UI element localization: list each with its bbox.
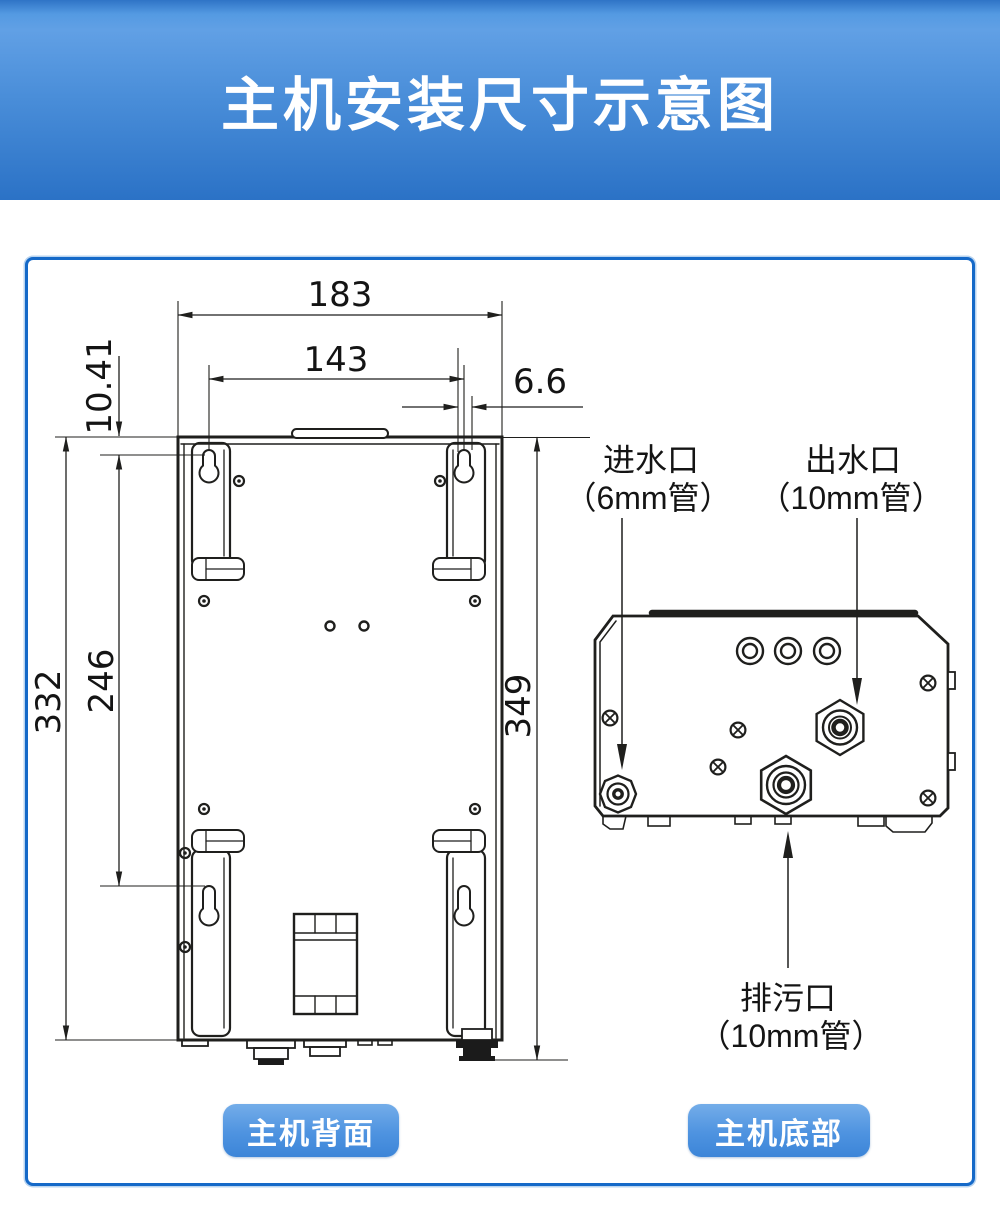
- drain-pipe-label: （10mm管）: [699, 1018, 884, 1054]
- inlet-label: 进水口: [603, 442, 699, 478]
- dim-label-overall-height: 349: [499, 674, 539, 739]
- rear-view-drawing: [178, 429, 502, 1065]
- rear-top-handle-tab: [292, 429, 388, 438]
- dim-label-mounting-height: 246: [82, 649, 122, 714]
- outlet-pipe-label: （10mm管）: [759, 480, 944, 516]
- rear-rail-bottom-left: [192, 830, 244, 1036]
- bottom-screws: [603, 676, 936, 806]
- keyhole-slot-bottom-right: [455, 886, 474, 925]
- rear-center-hole: [360, 622, 369, 631]
- dim-label-slot-width: 6.6: [513, 362, 567, 402]
- header-banner: 主机安装尺寸示意图: [0, 0, 1000, 200]
- rear-rail-top-left: [192, 443, 244, 580]
- drain-port-fitting: [761, 756, 811, 814]
- inlet-port-fitting: [600, 776, 636, 813]
- dim-label-top-offset: 10.41: [80, 337, 120, 434]
- page: 主机安装尺寸示意图: [0, 0, 1000, 1216]
- rear-center-hole: [326, 622, 335, 631]
- keyhole-slot-bottom-left: [200, 886, 219, 925]
- outlet-port-fitting: [817, 700, 864, 755]
- dim-label-body-height: 332: [29, 670, 69, 735]
- bottom-view-caption-badge: 主机底部: [688, 1104, 870, 1157]
- page-title: 主机安装尺寸示意图: [221, 58, 779, 142]
- rear-screws: [180, 476, 480, 952]
- rear-rail-bottom-right: [433, 830, 485, 1036]
- dim-label-overall-width: 183: [308, 275, 373, 315]
- inlet-pipe-label: （6mm管）: [564, 480, 731, 516]
- bottom-body-outline: [595, 616, 948, 816]
- dim-label-mounting-width: 143: [304, 340, 369, 380]
- outlet-label: 出水口: [805, 442, 901, 478]
- rear-view-dimensions: 183 143 6.6 10.41 246 332 349: [29, 275, 590, 1060]
- bottom-view-callouts: 进水口 （6mm管） 出水口 （10mm管） 排污口 （10mm管）: [564, 442, 943, 1054]
- keyhole-slot-top-right: [455, 450, 474, 482]
- drain-label: 排污口: [740, 980, 836, 1016]
- installation-diagram: 183 143 6.6 10.41 246 332 349: [25, 257, 975, 1186]
- rear-rail-top-right: [433, 443, 485, 580]
- bottom-vent-holes: [737, 638, 840, 664]
- bottom-view-drawing: [595, 613, 955, 832]
- bottom-feet: [603, 816, 932, 832]
- rear-view-caption-badge: 主机背面: [223, 1104, 399, 1157]
- rear-terminal-block: [294, 914, 357, 1014]
